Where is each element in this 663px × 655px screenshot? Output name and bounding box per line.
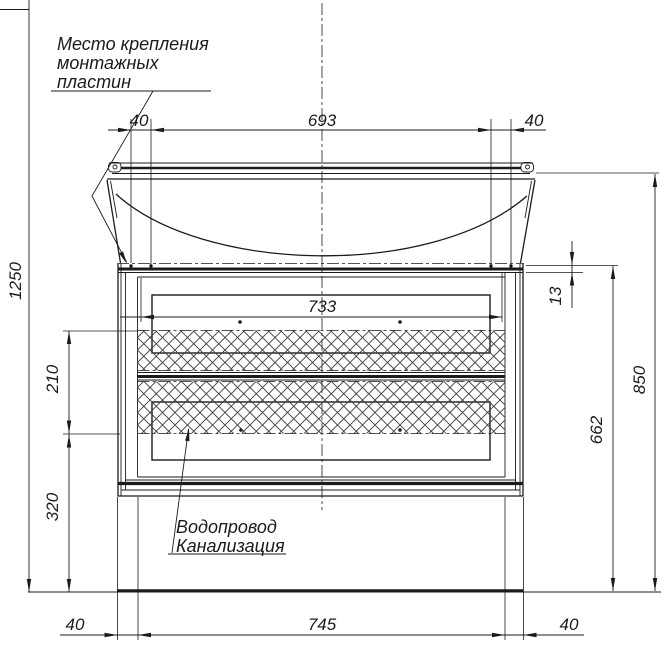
floor-line xyxy=(28,591,661,592)
vanity-technical-drawing: 40 693 40 733 13 1250 210 320 662 xyxy=(0,0,663,655)
dimension-bottom-chain: 40 745 40 xyxy=(60,497,584,640)
plumbing-note-line2: Канализация xyxy=(176,536,285,556)
sink-rim-right xyxy=(521,163,534,173)
dim-top-right-40: 40 xyxy=(525,111,544,130)
dim-662: 662 xyxy=(587,415,606,444)
handle-mark xyxy=(398,320,402,324)
plumbing-note-line1: Водопровод xyxy=(176,517,277,537)
dim-850: 850 xyxy=(630,365,649,394)
dimension-right-chain: 662 850 xyxy=(587,174,657,591)
dim-320: 320 xyxy=(43,492,62,521)
mounting-note-line3: пластин xyxy=(57,72,131,92)
handle-mark xyxy=(238,320,242,324)
hatch-zones xyxy=(138,331,506,434)
dim-210: 210 xyxy=(43,364,62,394)
basin-curve xyxy=(116,194,527,256)
dim-745: 745 xyxy=(308,615,337,634)
sink-profile xyxy=(107,163,659,264)
dim-bottom-left-40: 40 xyxy=(66,615,85,634)
dimension-top-chain: 40 693 40 xyxy=(108,111,546,265)
drawing-sheet: 40 693 40 733 13 1250 210 320 662 xyxy=(0,0,663,655)
hatch-band-top xyxy=(138,331,506,371)
dimension-thickness-13: 13 xyxy=(526,241,618,308)
hatch-band-bottom xyxy=(138,382,506,434)
plumbing-annotation: Водопровод Канализация xyxy=(168,428,286,556)
mounting-plate-mark xyxy=(129,264,132,267)
mounting-note-line1: Место крепления xyxy=(57,34,209,54)
dim-13: 13 xyxy=(546,286,565,305)
mounting-note-line2: монтажных xyxy=(57,53,160,73)
dim-1250: 1250 xyxy=(6,262,25,300)
dimension-inner-width: 733 xyxy=(120,272,502,322)
dim-733: 733 xyxy=(308,297,337,316)
dim-top-693: 693 xyxy=(308,111,337,130)
dim-bottom-right-40: 40 xyxy=(560,615,579,634)
